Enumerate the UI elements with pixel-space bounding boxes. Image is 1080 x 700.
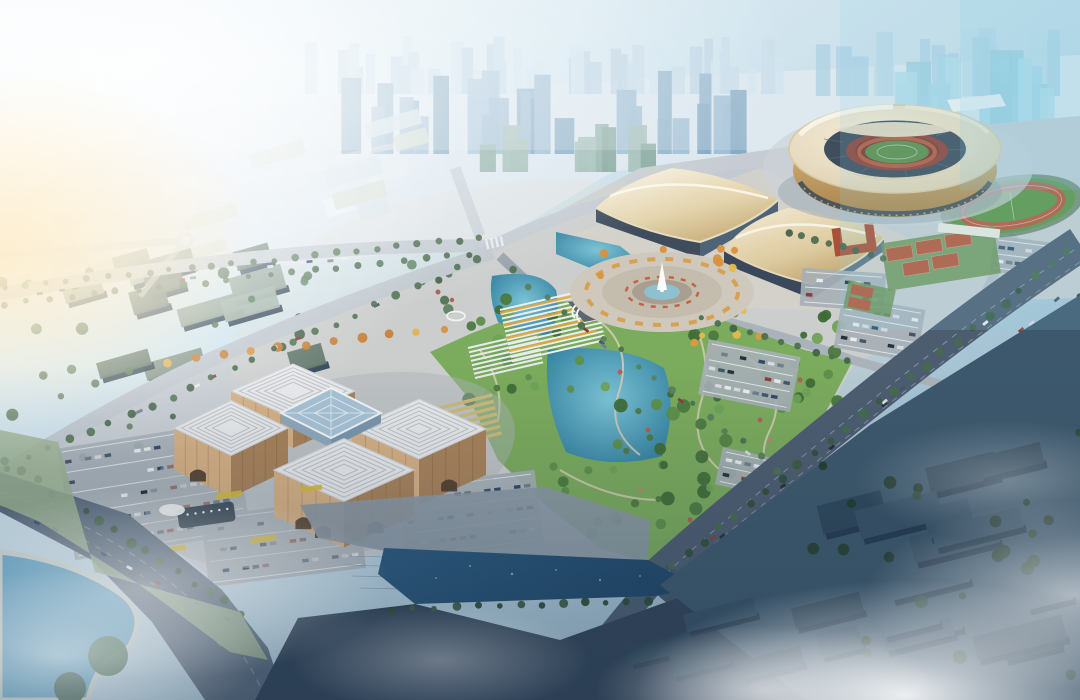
aerial-rendering bbox=[0, 0, 1080, 700]
atmosphere bbox=[0, 0, 1080, 700]
scene-canvas bbox=[0, 0, 1080, 700]
